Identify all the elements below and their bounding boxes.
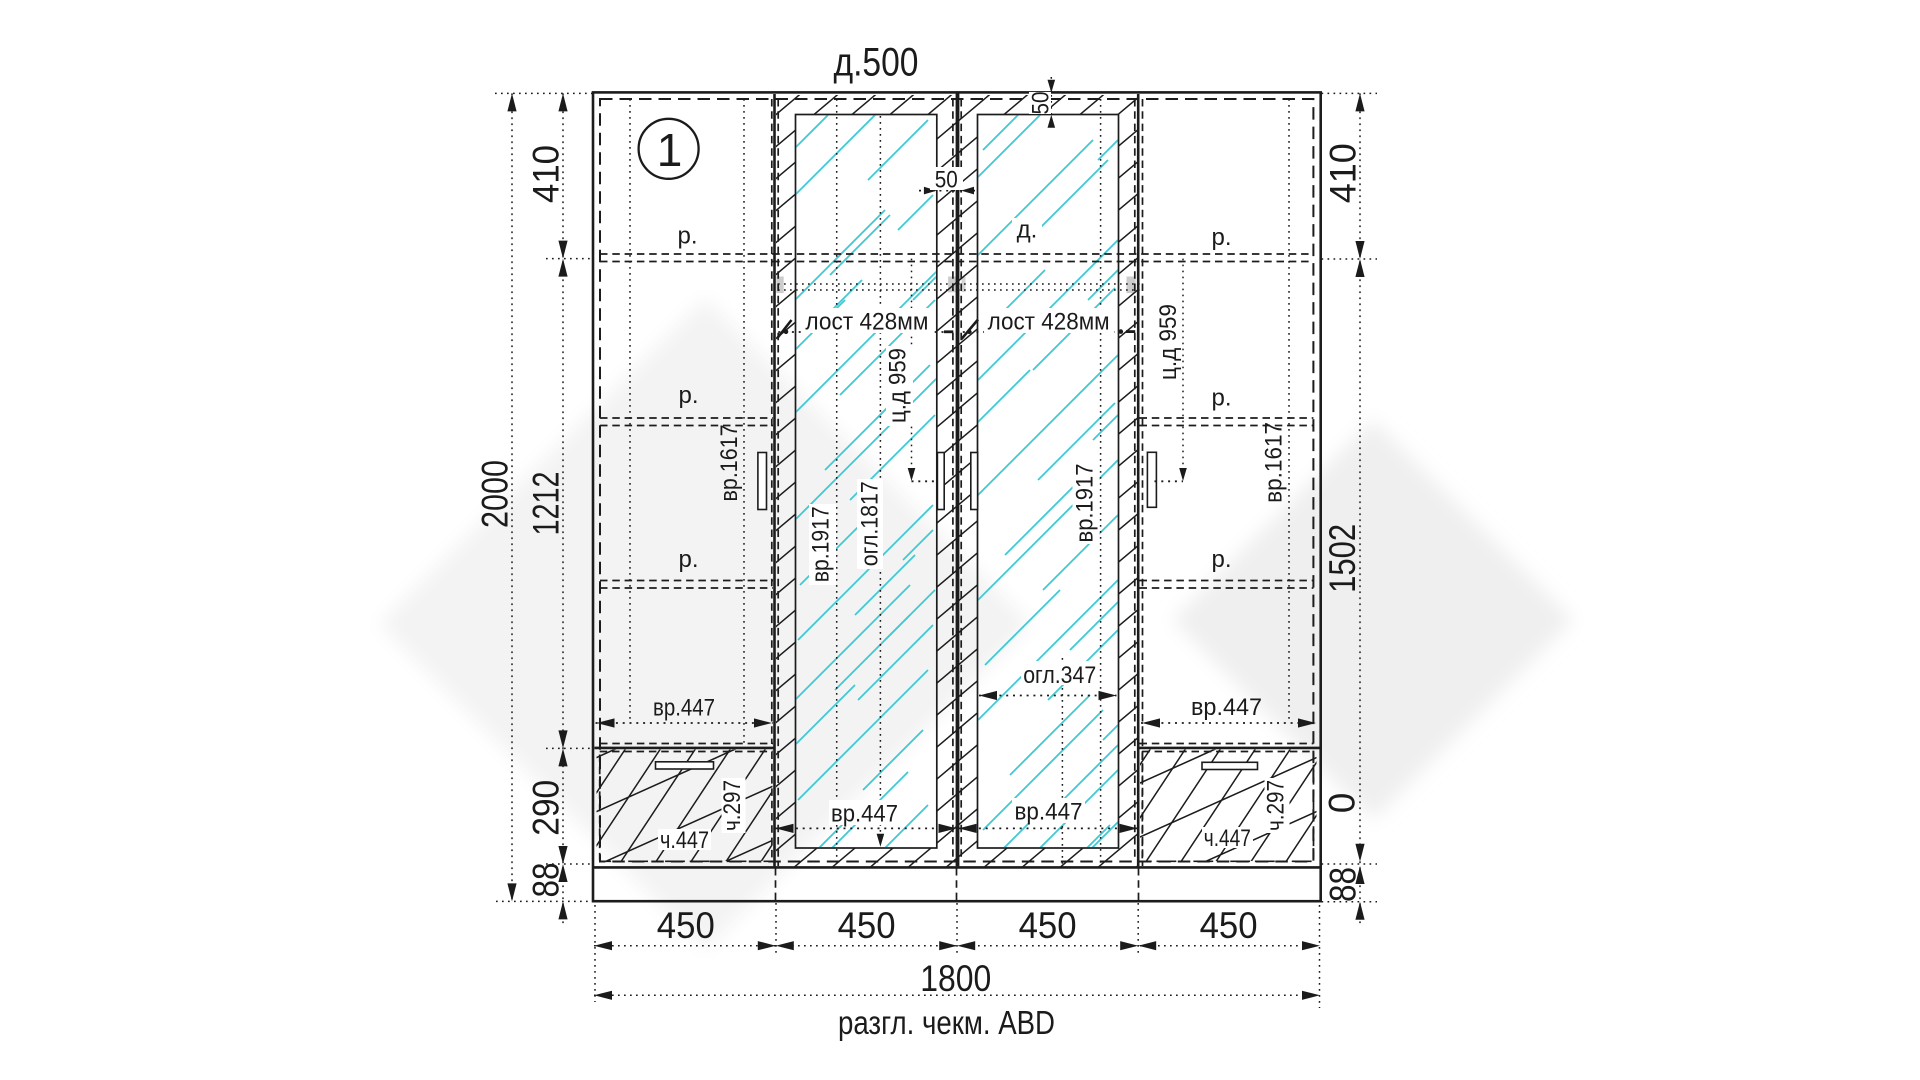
svg-text:ч.297: ч.297 xyxy=(719,780,746,831)
svg-text:р.: р. xyxy=(678,382,698,409)
svg-text:огл.347: огл.347 xyxy=(1023,662,1096,689)
svg-text:1212: 1212 xyxy=(526,472,567,536)
svg-text:290: 290 xyxy=(526,780,567,836)
svg-text:88: 88 xyxy=(526,863,567,898)
svg-text:88: 88 xyxy=(1323,867,1364,902)
svg-text:1502: 1502 xyxy=(1322,524,1363,593)
svg-text:50: 50 xyxy=(1028,92,1055,115)
svg-text:вр.1917: вр.1917 xyxy=(808,506,835,582)
svg-text:р.: р. xyxy=(1211,546,1231,573)
svg-text:р.: р. xyxy=(1211,224,1231,251)
svg-text:2000: 2000 xyxy=(475,460,516,528)
svg-text:450: 450 xyxy=(1019,905,1077,946)
svg-text:вр.447: вр.447 xyxy=(1015,799,1083,826)
svg-text:410: 410 xyxy=(526,145,567,203)
svg-text:50: 50 xyxy=(935,166,958,193)
svg-text:огл.1817: огл.1817 xyxy=(857,481,884,566)
svg-text:1800: 1800 xyxy=(920,958,991,999)
svg-text:ц.д 959: ц.д 959 xyxy=(1155,304,1182,380)
svg-text:д.: д. xyxy=(1017,217,1038,244)
svg-text:450: 450 xyxy=(657,905,715,946)
svg-text:1: 1 xyxy=(657,124,683,176)
svg-text:вр.1917: вр.1917 xyxy=(1072,464,1099,543)
svg-text:ч.447: ч.447 xyxy=(660,827,709,854)
svg-text:ц.д 959: ц.д 959 xyxy=(885,348,912,423)
svg-text:0: 0 xyxy=(1322,793,1363,814)
svg-text:вр.447: вр.447 xyxy=(831,801,898,828)
svg-text:450: 450 xyxy=(838,905,896,946)
svg-text:ч.447: ч.447 xyxy=(1204,825,1251,852)
svg-text:вр.1617: вр.1617 xyxy=(1261,422,1288,503)
svg-text:вр.447: вр.447 xyxy=(1191,694,1262,721)
svg-text:ч.297: ч.297 xyxy=(1263,780,1290,831)
svg-text:р.: р. xyxy=(1211,385,1231,412)
svg-text:р.: р. xyxy=(678,546,698,573)
svg-text:вр.1617: вр.1617 xyxy=(716,425,743,502)
svg-text:450: 450 xyxy=(1200,905,1258,946)
svg-text:вр.447: вр.447 xyxy=(653,695,715,722)
svg-text:410: 410 xyxy=(1323,143,1364,203)
svg-text:лост 428мм: лост 428мм xyxy=(805,309,928,336)
svg-text:р.: р. xyxy=(677,223,697,250)
svg-text:д.500: д.500 xyxy=(834,41,919,85)
svg-text:лост 428мм: лост 428мм xyxy=(988,309,1110,336)
svg-text:разгл. чекм. ABD: разгл. чекм. ABD xyxy=(838,1004,1055,1041)
